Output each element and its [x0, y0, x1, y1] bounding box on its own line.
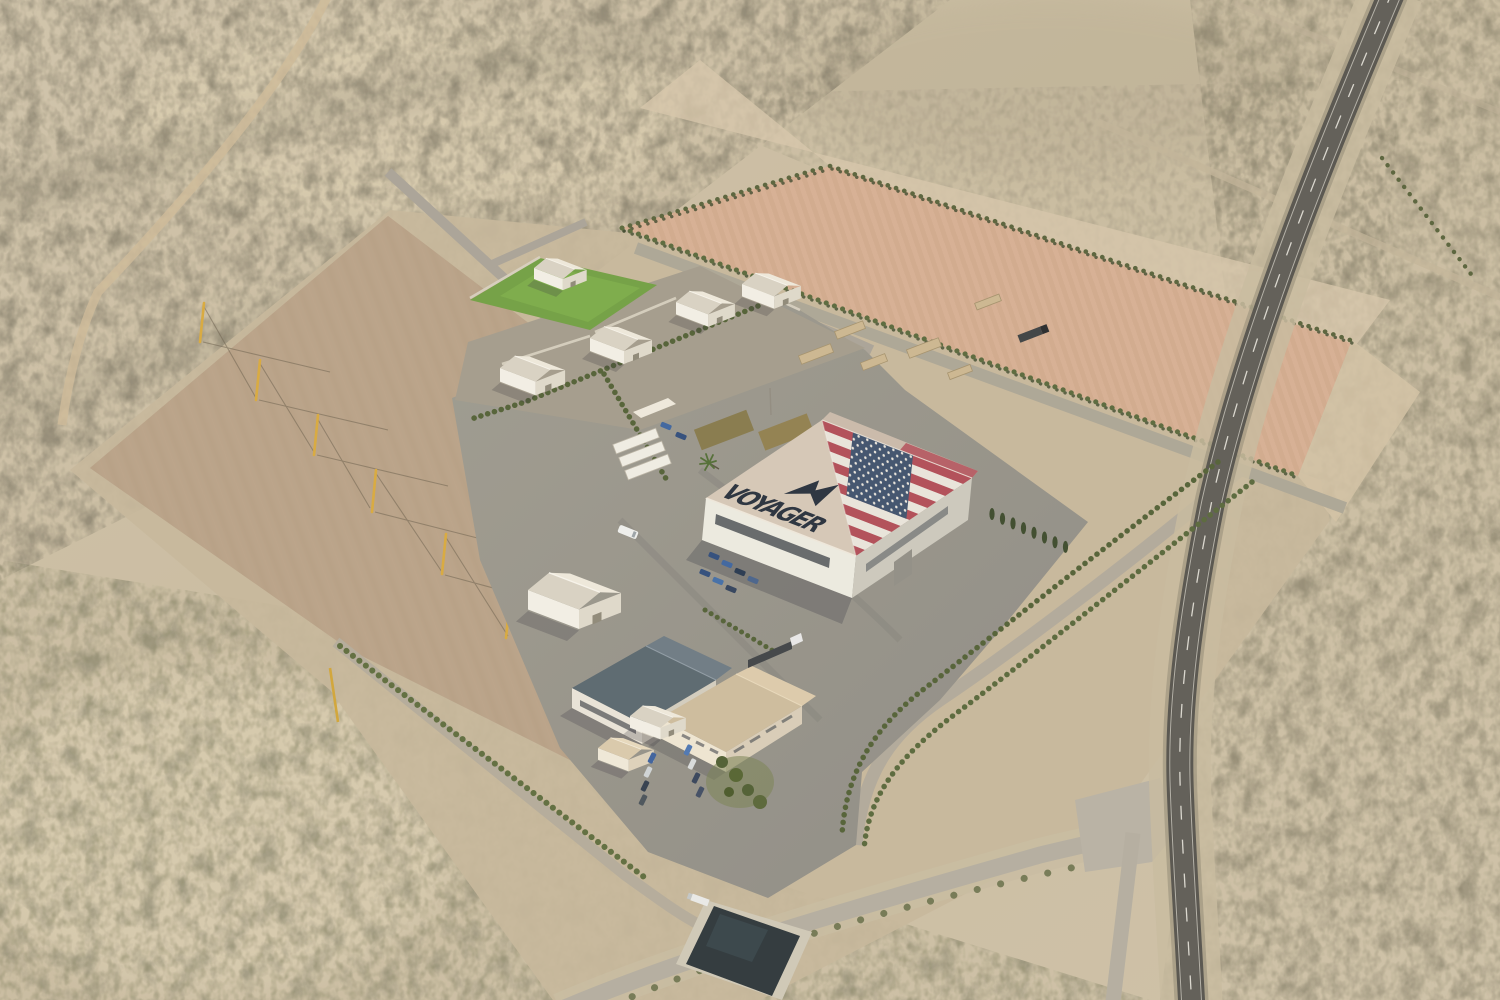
- scene-canvas: VOYAGER: [0, 0, 1500, 1000]
- light-wash: [0, 0, 1500, 1000]
- aerial-photo: VOYAGER: [0, 0, 1500, 1000]
